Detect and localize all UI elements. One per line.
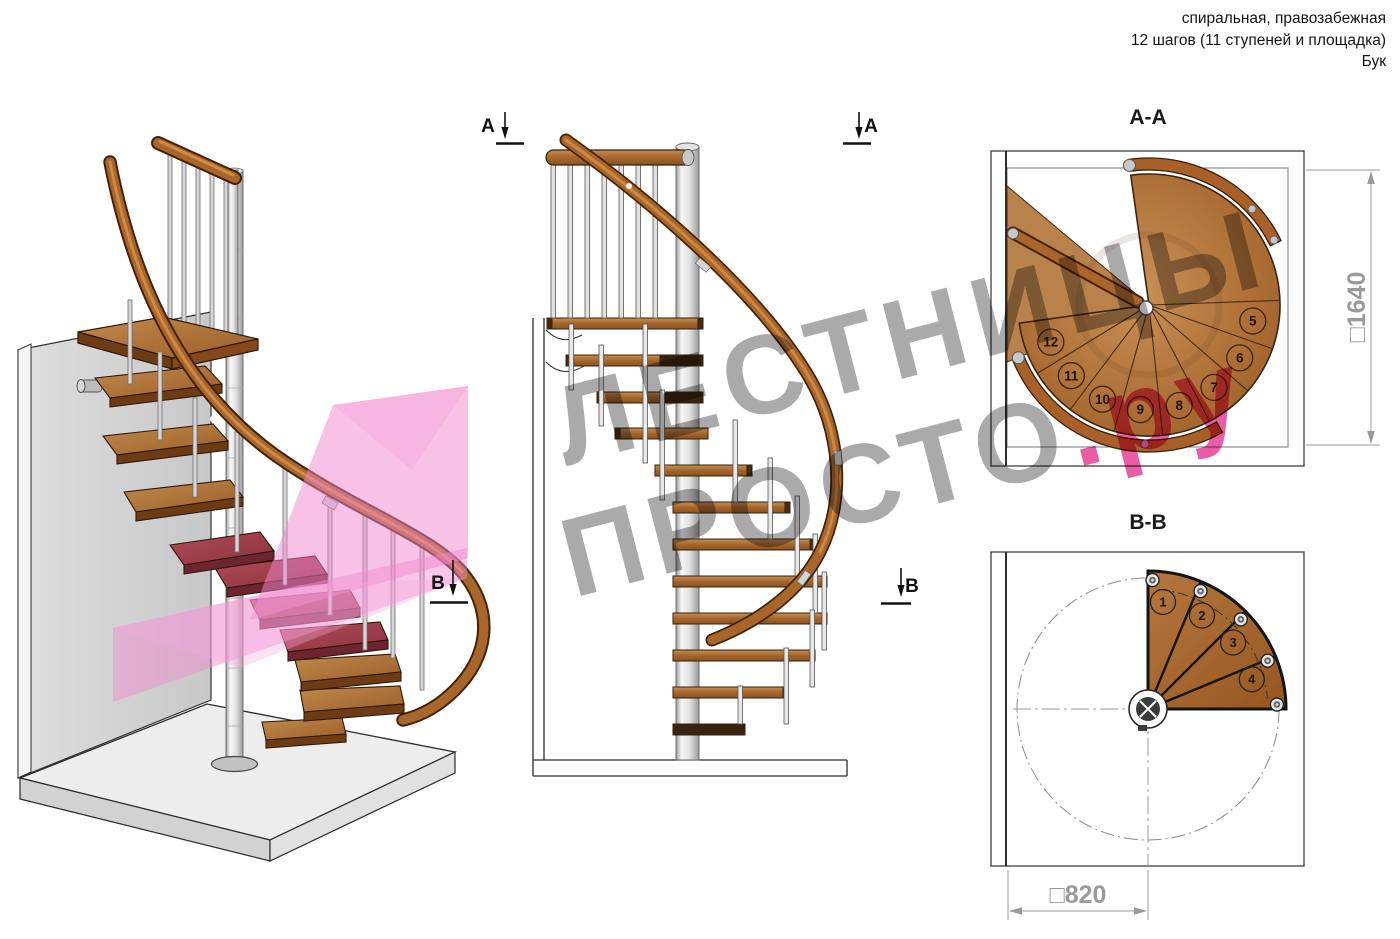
title-block: спиральная, правозабежная 12 шагов (11 с… <box>1131 8 1386 73</box>
svg-text:1: 1 <box>1159 595 1166 610</box>
title-line-type: спиральная, правозабежная <box>1131 8 1386 30</box>
section-marker-a-left: А <box>481 112 524 144</box>
svg-text:10: 10 <box>1095 392 1110 407</box>
iso-step <box>295 654 401 691</box>
svg-text:3: 3 <box>1229 635 1236 650</box>
title-line-steps: 12 шагов (11 ступеней и площадка) <box>1131 30 1386 52</box>
plan-bb: В-В 1 2 <box>991 511 1304 920</box>
dimension-label: □1640 <box>1343 272 1371 343</box>
svg-text:А: А <box>481 116 495 137</box>
title-line-material: Бук <box>1131 51 1386 73</box>
svg-text:9: 9 <box>1137 402 1145 417</box>
plan-aa-dimension: □1640 <box>1306 170 1380 445</box>
svg-text:11: 11 <box>1064 368 1079 383</box>
svg-text:2: 2 <box>1198 608 1205 623</box>
plan-bb-center-pole <box>1129 690 1167 731</box>
dimension-label: □820 <box>1050 881 1107 909</box>
svg-text:12: 12 <box>1043 335 1058 350</box>
iso-view <box>18 142 484 862</box>
svg-text:В: В <box>431 573 445 594</box>
svg-text:5: 5 <box>1249 314 1257 329</box>
svg-text:8: 8 <box>1175 398 1183 413</box>
svg-text:7: 7 <box>1210 380 1218 395</box>
plan-aa: А-А <box>991 106 1380 466</box>
plan-aa-title: А-А <box>1129 106 1166 129</box>
iso-step <box>300 686 404 721</box>
plan-bb-dimension: □820 <box>1008 870 1148 920</box>
elevation-view <box>533 140 847 776</box>
svg-text:6: 6 <box>1236 351 1244 366</box>
plan-bb-fan: 1 2 3 4 <box>1129 571 1286 731</box>
section-marker-a-right: А <box>843 112 878 144</box>
section-marker-b-right: В <box>881 568 919 604</box>
svg-text:А: А <box>864 116 878 137</box>
plan-bb-title: В-В <box>1129 511 1166 534</box>
staircase-drawing-page: А-А <box>0 0 1400 939</box>
svg-text:В: В <box>905 576 919 597</box>
technical-drawing: А-А <box>0 0 1400 939</box>
svg-text:4: 4 <box>1248 672 1256 687</box>
elevation-handrail <box>566 140 842 640</box>
